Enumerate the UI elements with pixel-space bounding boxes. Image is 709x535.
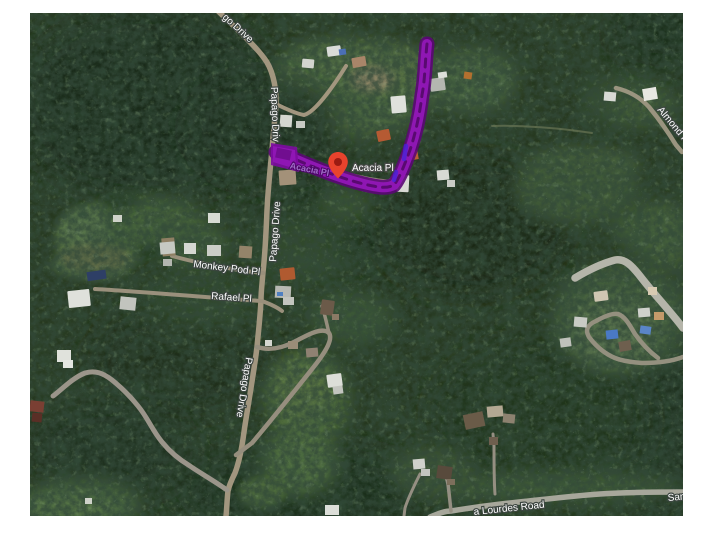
svg-text:San: San <box>667 491 683 504</box>
svg-text:Papago Driv: Papago Driv <box>268 87 281 142</box>
svg-text:Acacia Pl: Acacia Pl <box>352 163 394 174</box>
